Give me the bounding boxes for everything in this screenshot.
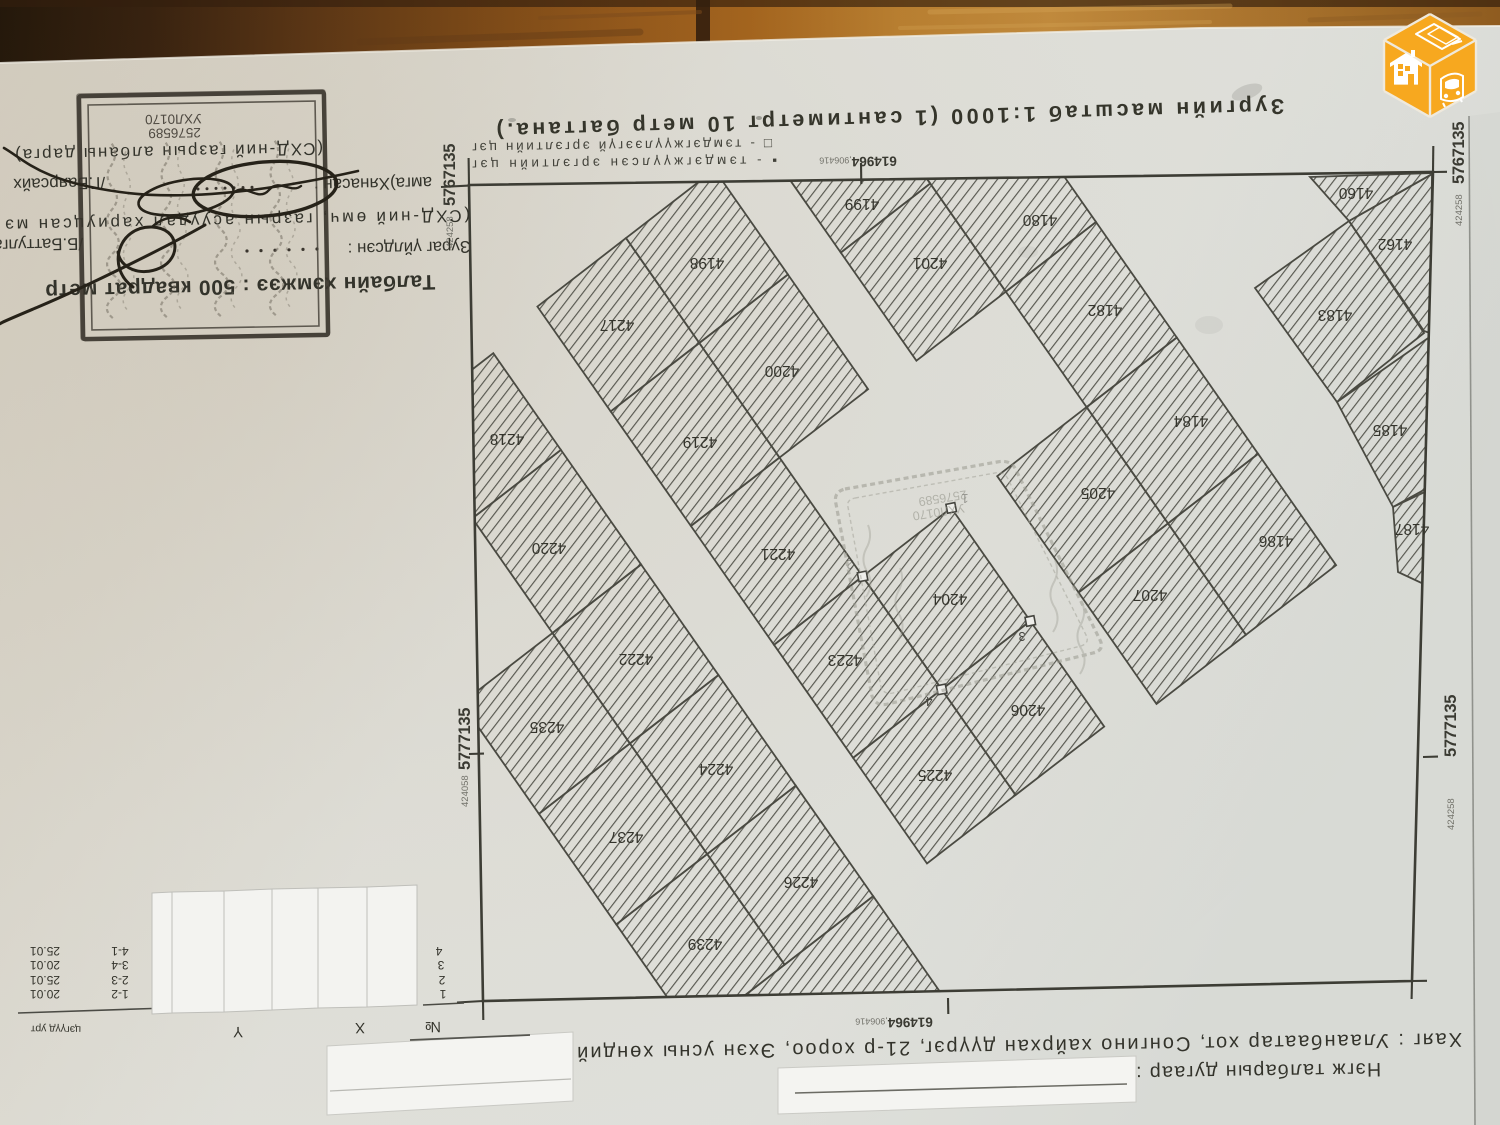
svg-text:4239: 4239 — [688, 935, 722, 952]
svg-text:4180: 4180 — [1022, 211, 1057, 228]
svg-text:4162: 4162 — [1378, 235, 1412, 252]
svg-text:1-2: 1-2 — [111, 987, 129, 1001]
svg-text:4: 4 — [925, 694, 932, 708]
svg-text:4199: 4199 — [845, 195, 879, 212]
svg-text:4160: 4160 — [1338, 184, 1373, 201]
svg-text:25.01: 25.01 — [30, 944, 60, 958]
svg-text:Y: Y — [233, 1023, 243, 1040]
svg-text:5767135: 5767135 — [441, 144, 459, 206]
svg-text:УХЛ0170: УХЛ0170 — [145, 111, 202, 127]
svg-text:4200: 4200 — [764, 362, 799, 379]
svg-text:4207: 4207 — [1133, 586, 1167, 603]
svg-text:4184: 4184 — [1173, 412, 1208, 429]
svg-text:/Г.Баярсайх: /Г.Баярсайх — [13, 173, 106, 194]
svg-text:4-1: 4-1 — [111, 944, 129, 958]
svg-text:2: 2 — [438, 973, 445, 987]
svg-text:4219: 4219 — [683, 433, 717, 450]
svg-text:4226: 4226 — [784, 873, 818, 890]
svg-text:5777135: 5777135 — [1442, 695, 1460, 757]
svg-text:4225: 4225 — [918, 766, 952, 783]
svg-text:4235: 4235 — [530, 718, 564, 735]
svg-text:4187: 4187 — [1395, 520, 1429, 537]
svg-text:4: 4 — [435, 944, 442, 958]
svg-text:4224: 4224 — [698, 760, 733, 777]
svg-text:424058: 424058 — [460, 775, 471, 807]
svg-text:X: X — [355, 1019, 365, 1036]
svg-text:Зураг үйлдсэн :: Зураг үйлдсэн : — [347, 237, 470, 259]
svg-text:4201: 4201 — [913, 254, 947, 271]
svg-text:3-4: 3-4 — [111, 958, 129, 972]
svg-text:4186: 4186 — [1259, 532, 1293, 549]
svg-text:4185: 4185 — [1373, 421, 1407, 438]
svg-text:20.01: 20.01 — [30, 958, 60, 972]
svg-text:3: 3 — [1018, 629, 1025, 643]
svg-text:4198: 4198 — [690, 254, 724, 271]
svg-text:424258: 424258 — [1454, 194, 1465, 226]
svg-text:2576589: 2576589 — [148, 125, 201, 141]
svg-text:3: 3 — [437, 958, 444, 972]
svg-text:4237: 4237 — [609, 828, 643, 845]
svg-text:4206: 4206 — [1011, 701, 1045, 718]
svg-text:4221: 4221 — [761, 545, 795, 562]
svg-text:4182: 4182 — [1088, 301, 1122, 318]
svg-text:/Б.Баттулга: /Б.Баттулга — [0, 234, 83, 255]
svg-text:4223: 4223 — [828, 651, 862, 668]
svg-text:5777135: 5777135 — [456, 708, 474, 770]
svg-text:№: № — [425, 1018, 441, 1035]
svg-text:25.01: 25.01 — [30, 973, 60, 987]
svg-text:4204: 4204 — [932, 590, 967, 607]
svg-text:20.01: 20.01 — [30, 987, 60, 1001]
svg-text:4222: 4222 — [619, 650, 653, 667]
svg-text:4217: 4217 — [600, 316, 634, 333]
svg-text:4183: 4183 — [1318, 306, 1352, 323]
svg-text:цэгүүд урт: цэгүүд урт — [31, 1023, 82, 1036]
svg-text:2-3: 2-3 — [111, 973, 129, 987]
svg-text:4220: 4220 — [531, 539, 566, 556]
svg-text:1: 1 — [439, 987, 446, 1001]
svg-text:5767135: 5767135 — [1450, 122, 1468, 184]
svg-text:424258: 424258 — [1446, 798, 1457, 830]
svg-text:4205: 4205 — [1081, 484, 1115, 501]
svg-text:4218: 4218 — [490, 430, 524, 447]
svg-text:Нэгж талбарын дугаар :: Нэгж талбарын дугаар : — [1136, 1058, 1381, 1084]
